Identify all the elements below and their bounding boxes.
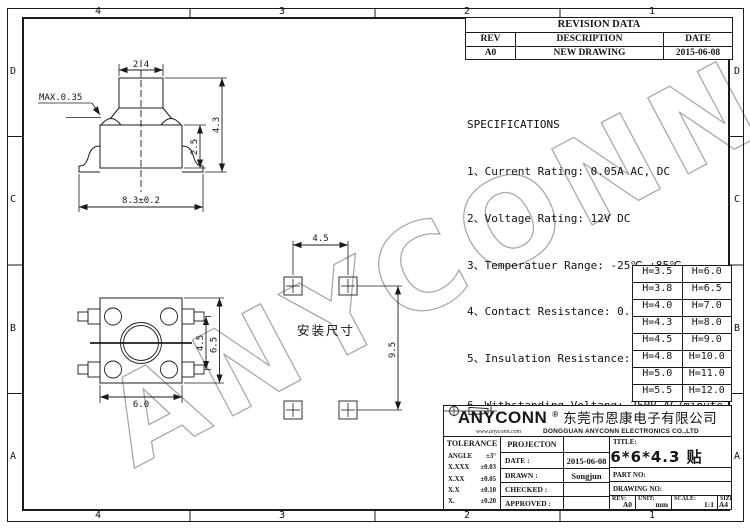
dim-plan-pitch: 4.5 (196, 335, 206, 351)
zone-number-top: 2 (459, 7, 475, 17)
drawing-no-cell: DRAWING NO: (610, 482, 731, 495)
scale-label: SCALE: (674, 496, 696, 502)
title-label: TITLE: (613, 438, 637, 446)
tolerance-label: X.X (448, 485, 460, 496)
spec-title: SPECIFICATIONS (467, 117, 723, 133)
dim-plan-height: 6.5 (210, 337, 220, 353)
tolerance-value: ±0.20 (480, 496, 496, 507)
height-cell: H=3.5 (633, 266, 682, 282)
tolerance-row: X.XX±0.05 (444, 474, 500, 485)
spec-item: 2、Voltage Rating: 12V DC (467, 211, 723, 227)
dim-pad-span: 9.5 (388, 342, 398, 358)
dim-body-height: 2.5 (190, 139, 200, 155)
company-name-en: DONGGUAN ANYCONN ELECTRONICS CO.,LTD (543, 428, 699, 435)
title-area: TITLE: 6*6*4.3 贴片 PART NO: DRAWING NO: R… (610, 437, 731, 509)
drawn-label: DRAWN : (501, 469, 563, 482)
company-website: www.anyconn.com (476, 429, 521, 435)
tolerance-label: X.XX (448, 474, 464, 485)
revision-description: NEW DRAWING (516, 47, 663, 60)
front-view: 2.4 MAX.0.35 4.3 2.5 8.3±0.2 (38, 60, 227, 212)
rev-cell: REV: A0 (610, 496, 635, 509)
zone-letter-left: D (6, 67, 20, 77)
tolerance-label: X.XXX (448, 462, 469, 473)
revision-table-title: REVISION DATA (466, 18, 732, 32)
tolerance-value: ±0.10 (480, 485, 496, 496)
height-cell: H=9.0 (683, 334, 732, 350)
tolerance-label: ANGLE (448, 451, 472, 462)
tolerance-value: ±0.05 (480, 474, 496, 485)
zone-number-top: 1 (644, 7, 660, 17)
height-table: H=3.5 H=6.0 H=3.8 H=6.5 H=4.0 H=7.0 H=4.… (632, 265, 732, 402)
zone-letter-left: B (6, 324, 20, 334)
size-value: A4 (719, 500, 728, 509)
zone-letter-right: A (730, 452, 744, 462)
zone-letter-left: A (6, 452, 20, 462)
zone-letter-right: C (730, 195, 744, 205)
tolerance-value: ±3° (486, 451, 496, 462)
height-cell: H=4.5 (633, 334, 682, 350)
company-name-cn: 东莞市恩康电子有限公司 (563, 407, 717, 427)
dim-plan-width: 6.0 (133, 400, 149, 410)
zone-number-bottom: 2 (459, 511, 475, 521)
revision-date: 2015-06-08 (664, 47, 732, 60)
zone-number-bottom: 3 (274, 511, 290, 521)
height-cell: H=3.8 (633, 283, 682, 299)
tolerance-row: X.XXX±0.03 (444, 462, 500, 473)
checked-label: CHECKED : (501, 483, 563, 496)
zone-number-top: 3 (274, 7, 290, 17)
revision-header-rev: REV (466, 33, 515, 46)
tolerance-block: TOLERANCE ANGLE±3° X.XXX±0.03 X.XX±0.05 … (444, 437, 500, 509)
zone-number-bottom: 4 (90, 511, 106, 521)
date-label: DATE : (501, 453, 563, 468)
part-no-label: PART NO: (613, 471, 646, 479)
rev-unit-scale-size-row: REV: A0 UNIT: mm SCALE: 1:1 SIZE: A4 (610, 496, 731, 509)
height-cell: H=5.5 (633, 385, 682, 401)
tolerance-title: TOLERANCE (444, 437, 500, 451)
projection-label: PROJECTON (501, 437, 563, 452)
dim-pad-pitch: 4.5 (312, 234, 328, 244)
revision-table: REVISION DATA REV DESCRIPTION DATE A0 NE… (465, 17, 733, 60)
revision-table-row: A0 NEW DRAWING 2015-06-08 (466, 47, 732, 60)
revision-header-date: DATE (664, 33, 732, 46)
height-cell: H=4.8 (633, 351, 682, 367)
revision-rev: A0 (466, 47, 515, 60)
title-block: ANYCONN® 东莞市恩康电子有限公司 www.anyconn.com DON… (443, 405, 732, 510)
unit-value: mm (656, 500, 669, 509)
rev-value: A0 (623, 500, 632, 509)
zone-letter-left: C (6, 195, 20, 205)
zone-letter-right: D (730, 67, 744, 77)
tolerance-row: X.±0.20 (444, 496, 500, 507)
revision-table-header-row: REV DESCRIPTION DATE (466, 33, 732, 46)
drawing-no-label: DRAWING NO: (613, 485, 662, 493)
drawn-value: Songjun (564, 469, 609, 482)
registered-mark: ® (552, 410, 558, 419)
zone-letter-right: B (730, 324, 744, 334)
tolerance-label: X. (448, 496, 455, 507)
dim-total-height: 4.3 (212, 117, 222, 133)
height-cell: H=5.0 (633, 368, 682, 384)
date-value: 2015-06-08 (564, 453, 609, 468)
dim-lead-span: 8.3±0.2 (122, 196, 160, 206)
zone-number-bottom: 1 (644, 511, 660, 521)
tolerance-row: X.X±0.10 (444, 485, 500, 496)
height-cell: H=6.0 (683, 266, 732, 282)
dim-front-width: 2.4 (133, 60, 149, 70)
drawing-title-cell: TITLE: 6*6*4.3 贴片 (610, 437, 731, 467)
height-cell: H=4.0 (633, 300, 682, 316)
scale-cell: SCALE: 1:1 (672, 496, 717, 509)
tolerance-row: ANGLE±3° (444, 451, 500, 462)
spec-item: 1、Current Rating: 0.05A AC, DC (467, 164, 723, 180)
revision-header-description: DESCRIPTION (516, 33, 663, 46)
scale-value: 1:1 (704, 500, 714, 509)
checked-value (564, 483, 609, 496)
zone-number-top: 4 (90, 7, 106, 17)
height-cell: H=10.0 (683, 351, 732, 367)
height-cell: H=11.0 (683, 368, 732, 384)
projection-symbol (564, 437, 609, 452)
unit-label: UNIT: (638, 496, 655, 502)
tolerance-value: ±0.03 (480, 462, 496, 473)
part-no-cell: PART NO: (610, 468, 731, 481)
dim-dome-height: MAX.0.35 (39, 93, 82, 103)
drawing-sheet: ANYCONN (0, 0, 750, 530)
height-cell: H=6.5 (683, 283, 732, 299)
approved-value (564, 497, 609, 509)
height-cell: H=8.0 (683, 317, 732, 333)
approved-label: APPROVED : (501, 497, 563, 509)
height-cell: H=7.0 (683, 300, 732, 316)
pad-layout-label: 安装尺寸 (297, 320, 355, 339)
height-cell: H=4.3 (633, 317, 682, 333)
unit-cell: UNIT: mm (636, 496, 671, 509)
height-cell: H=12.0 (683, 385, 732, 401)
size-cell: SIZE: A4 (718, 496, 731, 509)
